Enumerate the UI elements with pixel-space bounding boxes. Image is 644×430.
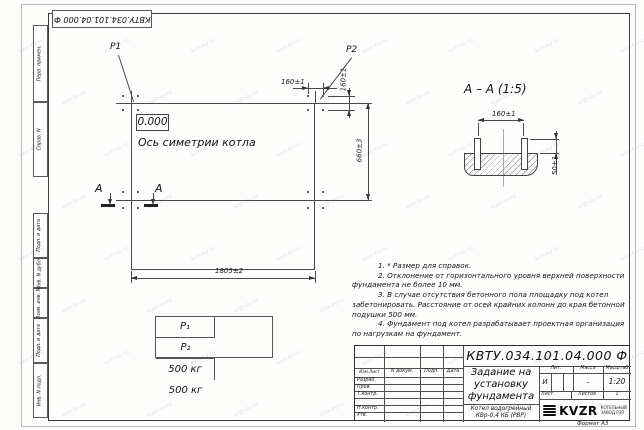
load-point-p2-label: P2 bbox=[346, 46, 357, 55]
dim-arrow bbox=[347, 90, 351, 96]
margin-label: Подп. и дата bbox=[38, 324, 43, 357]
dim-arrow bbox=[309, 276, 315, 280]
extension-line bbox=[328, 96, 355, 97]
notes-block: 1. * Размер для справок. 2. Отклонение о… bbox=[352, 261, 626, 339]
tb-lit-value: И bbox=[539, 373, 551, 391]
tb-logo-caption-line: ЗАВОД РЭП bbox=[601, 411, 627, 416]
extension-line bbox=[523, 123, 524, 136]
tb-row-nkontr: Н.контр. bbox=[357, 407, 378, 412]
tb-sheets-label: Листов bbox=[571, 391, 603, 399]
note-line: 3. В случае отсутствия бетонного пола пл… bbox=[352, 290, 626, 300]
watermark-text: kvzr-kv.ru bbox=[147, 0, 173, 3]
margin-box-podp-data-2: Подп. и дата bbox=[33, 318, 48, 363]
tb-title-line: фундамента bbox=[468, 391, 534, 403]
dim-arrow bbox=[323, 86, 329, 90]
tb-row-utv: Утв. bbox=[357, 414, 367, 419]
margin-label: Подп. и дата bbox=[38, 219, 43, 252]
tb-line bbox=[563, 373, 564, 391]
note-line: фундамента не более 10 мм. bbox=[352, 280, 626, 290]
dim-arrow bbox=[554, 133, 558, 139]
tb-doc-number: КВТУ.034.101.04.000 Ф bbox=[463, 346, 631, 366]
tb-scale-value: 1:20 bbox=[603, 373, 631, 391]
dim-arrow bbox=[518, 118, 524, 122]
anchor-bolt-section bbox=[474, 138, 481, 170]
tb-product-name: Котел водогрейный КВр-0,4 КБ (РВР) bbox=[463, 404, 539, 422]
section-letter-left: А bbox=[95, 183, 103, 194]
tb-product-line: Котел водогрейный bbox=[471, 406, 532, 413]
format-note: Формат А3 bbox=[577, 422, 608, 428]
note-line: 2. Отклонение от горизонтального уровня … bbox=[352, 271, 626, 281]
anchor-bolt-section bbox=[521, 138, 528, 170]
tb-mass-value: – bbox=[573, 373, 603, 391]
loads-table-value-p1: 500 кг bbox=[156, 359, 215, 380]
tb-sheets-value: 1 bbox=[603, 391, 631, 399]
loads-table: P₁ P₂ 500 кг 500 кг bbox=[155, 316, 273, 358]
watermark-text: kvzr-kv.ru bbox=[0, 298, 2, 315]
doc-number-top-box: КВТУ.034.101.04.000 Ф bbox=[52, 10, 152, 28]
extension-line bbox=[315, 271, 316, 283]
extension-line bbox=[478, 123, 479, 136]
drawing-sheet: kvzr-kv.rukvzr-kv.rukvzr-kv.rukvzr-kv.ru… bbox=[0, 0, 644, 430]
margin-label: Справ. N bbox=[38, 129, 43, 151]
tb-line bbox=[551, 373, 552, 391]
note-line: забетонировать. Расстояние от осей крайн… bbox=[352, 300, 626, 310]
load-point-p1-label: P1 bbox=[110, 43, 121, 52]
tb-col-date: Дата bbox=[443, 368, 463, 377]
extension-line bbox=[530, 139, 559, 140]
axis-line-top bbox=[116, 103, 372, 104]
tb-col-doc: N докум. bbox=[384, 368, 420, 377]
dim-arrow bbox=[131, 276, 137, 280]
dim-width: 660±3 bbox=[356, 139, 363, 163]
note-line: 4. Фундамент под котел разрабатывает про… bbox=[352, 319, 626, 329]
tb-sheet-label: Лист. bbox=[541, 393, 555, 398]
extension-line bbox=[315, 91, 316, 103]
margin-box-inv-dubl: Инв. N дубл. bbox=[33, 258, 48, 288]
section-view-title: А – А (1:5) bbox=[464, 83, 527, 95]
dim-arrow bbox=[302, 86, 308, 90]
tb-line bbox=[355, 412, 463, 413]
note-line: 1. * Размер для справок. bbox=[352, 261, 626, 271]
dim-arrow bbox=[478, 118, 484, 122]
dimension-line bbox=[131, 278, 315, 279]
loads-table-value-p2: 500 кг bbox=[156, 380, 215, 401]
watermark-text: kvzr-kv.ru bbox=[0, 194, 2, 211]
margin-box-vzam-inv: Взам. инв. N bbox=[33, 288, 48, 318]
tb-lit-header: Лит. bbox=[539, 366, 573, 373]
section-cut-bar bbox=[144, 204, 158, 207]
margin-box-inv-podl: Инв. N подл. bbox=[33, 363, 48, 418]
tb-title-line: установку bbox=[474, 379, 528, 391]
tb-product-line: КВр-0,4 КБ (РВР) bbox=[476, 413, 526, 420]
tb-col-izm: Изм.Лист bbox=[355, 368, 384, 377]
level-mark: 0.000 bbox=[137, 117, 167, 128]
section-cut-bar bbox=[101, 204, 115, 207]
dim-bolt-spacing-h: 160±1 bbox=[281, 79, 305, 86]
note-line: подушки 500 мм. bbox=[352, 310, 626, 320]
note-line: по нагрузкам на фундамент. bbox=[352, 329, 626, 339]
tb-mass-header: Масса bbox=[573, 366, 603, 373]
watermark-text: kvzr-kv.ru bbox=[0, 402, 2, 419]
tb-line bbox=[355, 398, 463, 399]
watermark-text: kvzr-kv.ru bbox=[577, 0, 603, 3]
dimension-line bbox=[293, 88, 337, 89]
tb-line bbox=[355, 384, 463, 385]
dim-length: 1805±2 bbox=[215, 268, 243, 275]
section-letter-right: А bbox=[155, 183, 163, 194]
margin-label: Инв. N подл. bbox=[38, 375, 43, 407]
dim-arrow bbox=[347, 110, 351, 116]
tb-drawing-title: Задание на установку фундамента bbox=[463, 366, 539, 404]
dim-bolt-spacing-v: 160±1 bbox=[340, 68, 347, 92]
dim-arrow bbox=[366, 103, 370, 109]
tb-logo-area: KVZR КОТЕЛЬНЫЙ ЗАВОД РЭП bbox=[539, 399, 631, 422]
tb-row-prov: Пров. bbox=[357, 386, 371, 391]
dim-bolt-protrusion: 50±1 bbox=[552, 156, 559, 175]
doc-number-rotated: КВТУ.034.101.04.000 Ф bbox=[54, 15, 151, 23]
title-block: Изм.Лист N докум. Подп. Дата Разраб. Про… bbox=[354, 345, 630, 421]
boiler-axis-label: Ось симетрии котла bbox=[138, 137, 256, 148]
watermark-text: kvzr-kv.ru bbox=[0, 90, 2, 107]
loads-table-header-p2: P₂ bbox=[156, 338, 215, 359]
tb-row-tkontr: Т.контр. bbox=[357, 393, 378, 398]
coil-logo-icon bbox=[543, 405, 556, 416]
tb-logo-caption: КОТЕЛЬНЫЙ ЗАВОД РЭП bbox=[601, 406, 627, 415]
tb-line bbox=[355, 357, 463, 358]
watermark-text: kvzr-kv.ru bbox=[405, 0, 431, 3]
tb-col-sign: Подп. bbox=[420, 368, 443, 377]
tb-title-line: Задание на bbox=[471, 367, 532, 379]
loads-table-header-p1: P₁ bbox=[156, 317, 215, 338]
margin-box-perv-primen: Перв. примен. bbox=[33, 25, 48, 102]
tb-logo-text: KVZR bbox=[559, 405, 598, 417]
margin-label: Взам. инв. N bbox=[38, 287, 43, 318]
tb-row-razrab: Разраб. bbox=[357, 379, 376, 384]
watermark-text: kvzr-kv.ru bbox=[319, 0, 345, 3]
margin-label: Инв. N дубл. bbox=[38, 257, 43, 288]
margin-label: Перв. примен. bbox=[38, 45, 43, 81]
level-mark-box: 0.000 bbox=[136, 114, 169, 131]
extension-line bbox=[308, 83, 309, 94]
margin-box-sprav-n: Справ. N bbox=[33, 102, 48, 177]
watermark-text: kvzr-kv.ru bbox=[0, 0, 2, 3]
watermark-text: kvzr-kv.ru bbox=[61, 0, 87, 3]
tb-scale-header: Масштаб bbox=[603, 366, 631, 373]
dim-section-bolt-spacing: 160±1 bbox=[492, 111, 516, 118]
dimension-line bbox=[368, 103, 369, 200]
watermark-text: kvzr-kv.ru bbox=[233, 0, 259, 3]
margin-box-podp-data-1: Подп. и дата bbox=[33, 213, 48, 258]
dim-arrow bbox=[366, 194, 370, 200]
watermark-text: kvzr-kv.ru bbox=[491, 0, 517, 3]
